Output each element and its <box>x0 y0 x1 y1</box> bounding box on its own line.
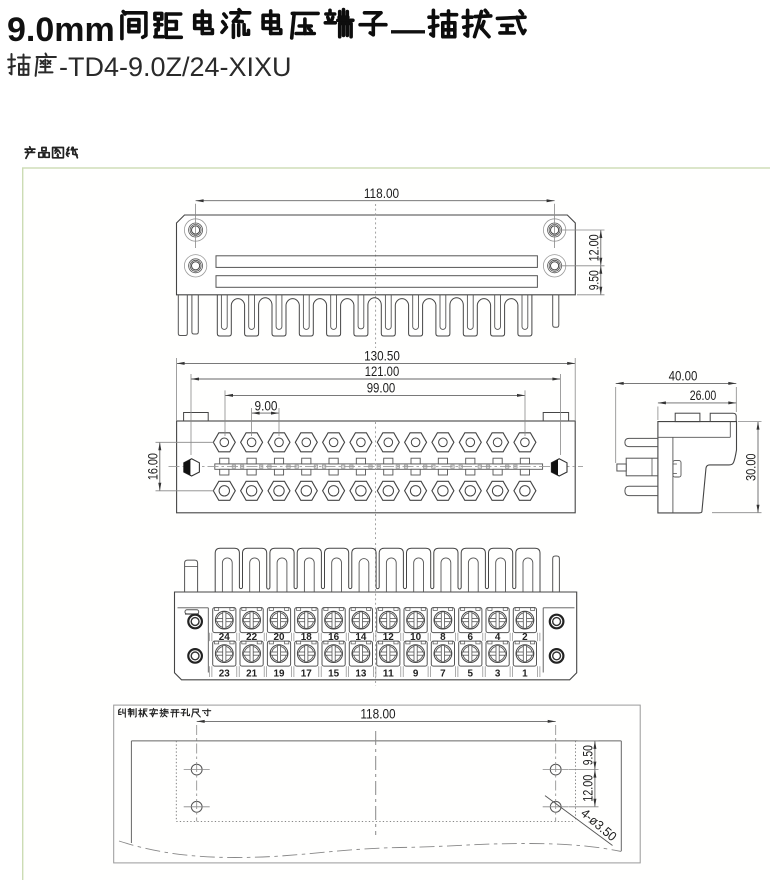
svg-text:19: 19 <box>274 668 285 679</box>
svg-text:9.50: 9.50 <box>585 270 601 290</box>
svg-text:20: 20 <box>274 632 285 643</box>
svg-text:3: 3 <box>495 668 501 679</box>
svg-text:2: 2 <box>522 632 528 643</box>
svg-text:8: 8 <box>440 632 446 643</box>
svg-text:121.00: 121.00 <box>365 364 399 379</box>
svg-text:5: 5 <box>468 668 474 679</box>
svg-text:9: 9 <box>413 668 419 679</box>
svg-text:-TD4-9.0Z/24-XIXU: -TD4-9.0Z/24-XIXU <box>59 52 292 82</box>
svg-text:23: 23 <box>219 668 230 679</box>
svg-text:16: 16 <box>328 632 339 643</box>
svg-text:24: 24 <box>219 632 230 643</box>
svg-text:9.50: 9.50 <box>579 745 595 765</box>
svg-text:6: 6 <box>468 632 474 643</box>
svg-text:11: 11 <box>383 668 394 679</box>
svg-text:4: 4 <box>495 632 501 643</box>
svg-text:14: 14 <box>355 632 366 643</box>
svg-text:—: — <box>391 11 425 49</box>
svg-text:30.00: 30.00 <box>743 453 759 481</box>
svg-text:21: 21 <box>246 668 257 679</box>
svg-text:12: 12 <box>383 632 394 643</box>
svg-text:12.00: 12.00 <box>585 234 601 261</box>
svg-text:7: 7 <box>440 668 446 679</box>
svg-text:12.00: 12.00 <box>579 775 595 802</box>
svg-text:22: 22 <box>246 632 257 643</box>
svg-text:26.00: 26.00 <box>690 388 716 403</box>
svg-text:99.00: 99.00 <box>367 381 396 396</box>
svg-text:40.00: 40.00 <box>669 369 698 384</box>
svg-text:17: 17 <box>301 668 312 679</box>
svg-text:16.00: 16.00 <box>144 453 160 480</box>
svg-text:118.00: 118.00 <box>364 186 399 201</box>
svg-text:130.50: 130.50 <box>364 349 400 364</box>
svg-text:118.00: 118.00 <box>360 707 395 722</box>
svg-text:15: 15 <box>328 668 339 679</box>
svg-text:13: 13 <box>355 668 366 679</box>
svg-text:10: 10 <box>410 632 421 643</box>
svg-text:9.00: 9.00 <box>255 398 278 413</box>
svg-text:9.0mm: 9.0mm <box>7 11 115 49</box>
svg-text:18: 18 <box>301 632 312 643</box>
svg-text:1: 1 <box>522 668 528 679</box>
